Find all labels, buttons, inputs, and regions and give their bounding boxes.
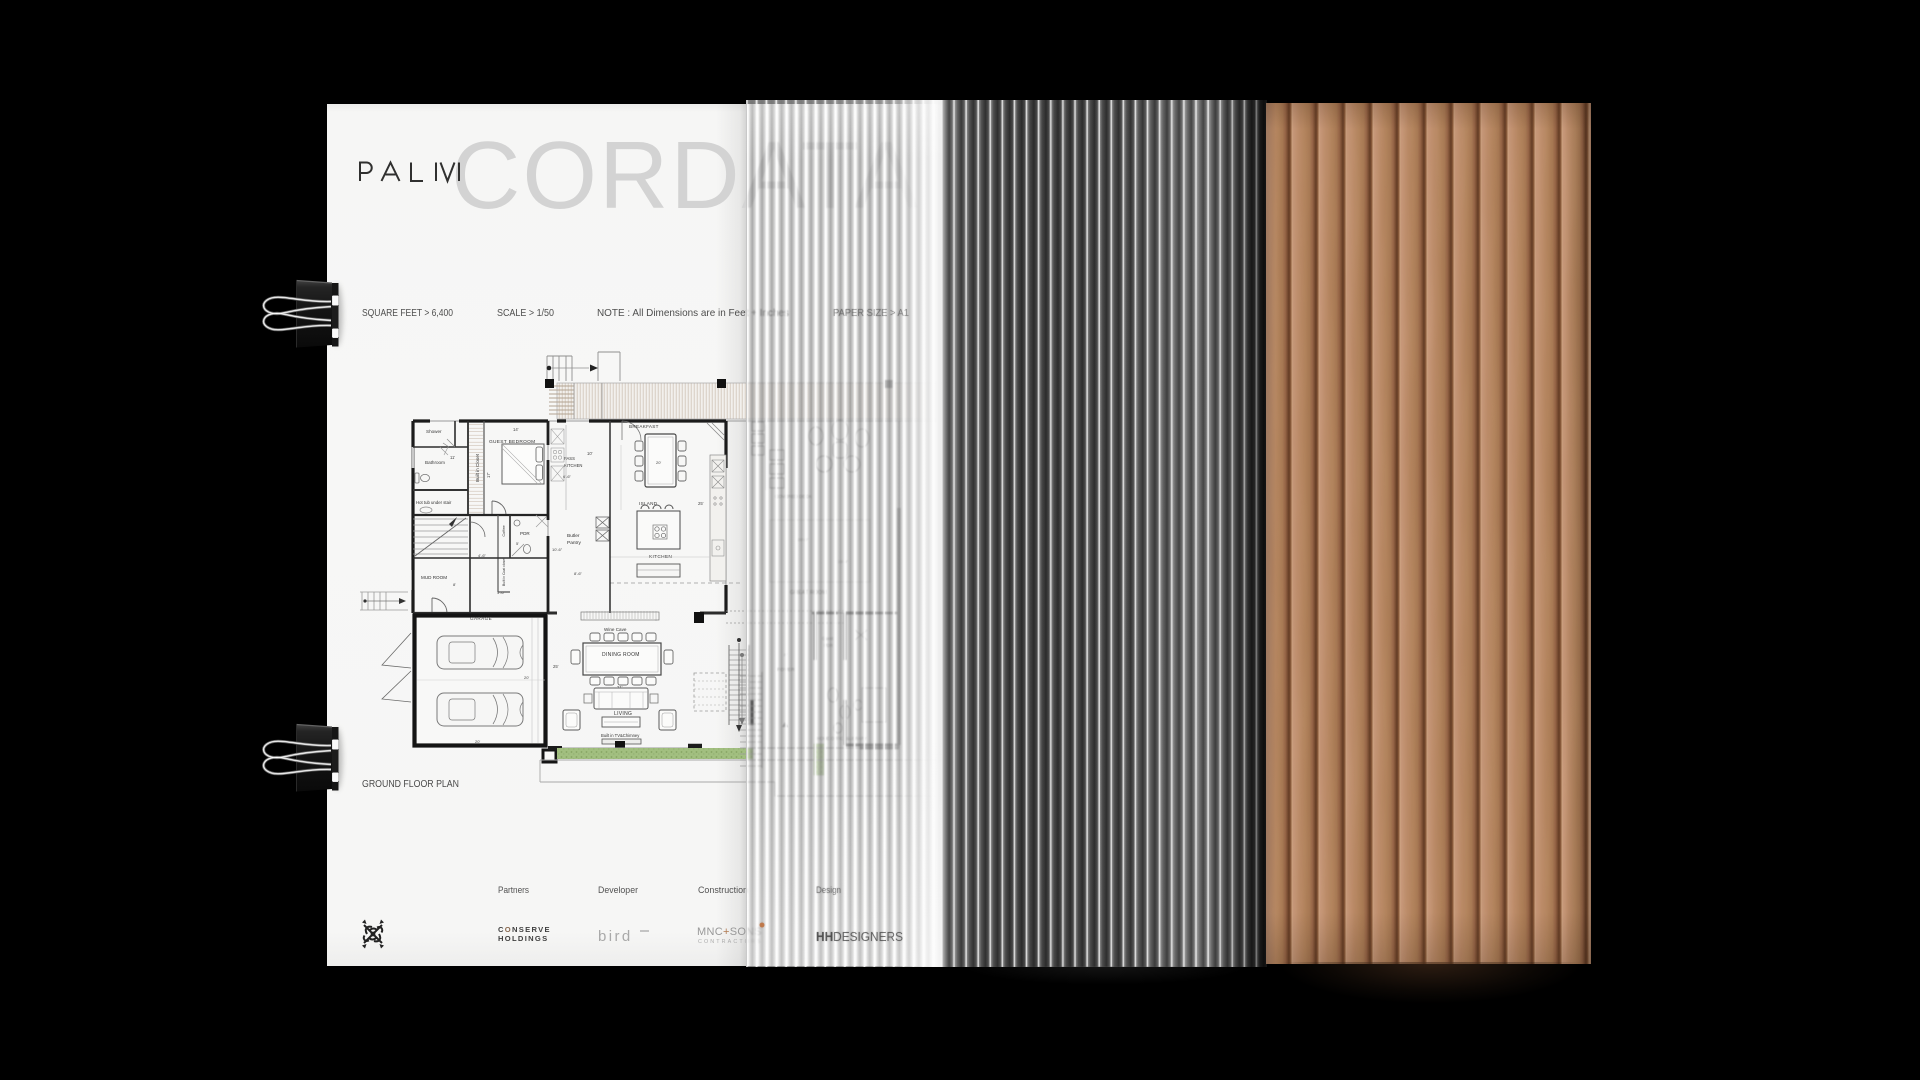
svg-text:MUD ROOM: MUD ROOM: [421, 575, 447, 580]
svg-text:14': 14': [513, 427, 519, 432]
svg-text:SQUARE FEET > 6,400: SQUARE FEET > 6,400: [362, 308, 453, 319]
svg-text:5': 5': [516, 541, 519, 546]
svg-text:bird: bird: [598, 928, 633, 945]
svg-text:SCALE > 1/50: SCALE > 1/50: [497, 308, 554, 319]
svg-text:LIVING: LIVING: [614, 711, 632, 717]
svg-text:25': 25': [698, 501, 704, 506]
svg-text:Built in TV&Chimney: Built in TV&Chimney: [601, 733, 640, 738]
svg-text:Pantry: Pantry: [567, 540, 581, 546]
svg-text:Shower: Shower: [426, 429, 442, 434]
svg-text:Built in Coat closet: Built in Coat closet: [502, 558, 506, 586]
svg-text:Coffee: Coffee: [502, 525, 506, 536]
svg-text:17': 17': [486, 472, 491, 478]
svg-text:Partners: Partners: [498, 885, 529, 896]
svg-text:CONSERVE: CONSERVE: [498, 925, 551, 934]
svg-text:20': 20': [656, 460, 661, 465]
svg-text:8': 8': [453, 582, 456, 587]
svg-text:PDR: PDR: [520, 531, 530, 536]
svg-text:10': 10': [587, 451, 593, 456]
svg-text:Hot tub under stair: Hot tub under stair: [416, 500, 452, 505]
svg-text:Built in Closet: Built in Closet: [475, 453, 480, 482]
svg-text:PAPER SIZE > A1: PAPER SIZE > A1: [833, 308, 909, 319]
svg-text:20': 20': [475, 739, 480, 744]
svg-text:20': 20': [524, 675, 529, 680]
svg-text:10'-6": 10'-6": [552, 547, 563, 552]
svg-text:Design: Design: [816, 885, 841, 896]
svg-text:GARAGE: GARAGE: [470, 616, 492, 621]
svg-text:GROUND FLOOR PLAN: GROUND FLOOR PLAN: [362, 779, 459, 790]
svg-text:Wine Cave: Wine Cave: [604, 627, 627, 632]
svg-text:25': 25': [553, 664, 559, 669]
svg-text:PASS: PASS: [564, 456, 575, 461]
svg-text:Construction: Construction: [698, 885, 748, 896]
svg-text:BREAKFAST: BREAKFAST: [629, 424, 659, 429]
svg-text:6'-6": 6'-6": [563, 474, 572, 479]
svg-text:KITCHEN: KITCHEN: [564, 463, 582, 468]
svg-text:Butler: Butler: [567, 533, 580, 539]
svg-text:11': 11': [450, 455, 455, 460]
svg-text:HOLDINGS: HOLDINGS: [498, 934, 548, 943]
svg-text:DINING ROOM: DINING ROOM: [602, 652, 640, 658]
svg-text:8'-6": 8'-6": [574, 571, 583, 576]
svg-text:Developer: Developer: [598, 885, 638, 896]
svg-text:HHDESIGNERS: HHDESIGNERS: [816, 930, 903, 944]
svg-text:Bathroom: Bathroom: [425, 460, 445, 465]
